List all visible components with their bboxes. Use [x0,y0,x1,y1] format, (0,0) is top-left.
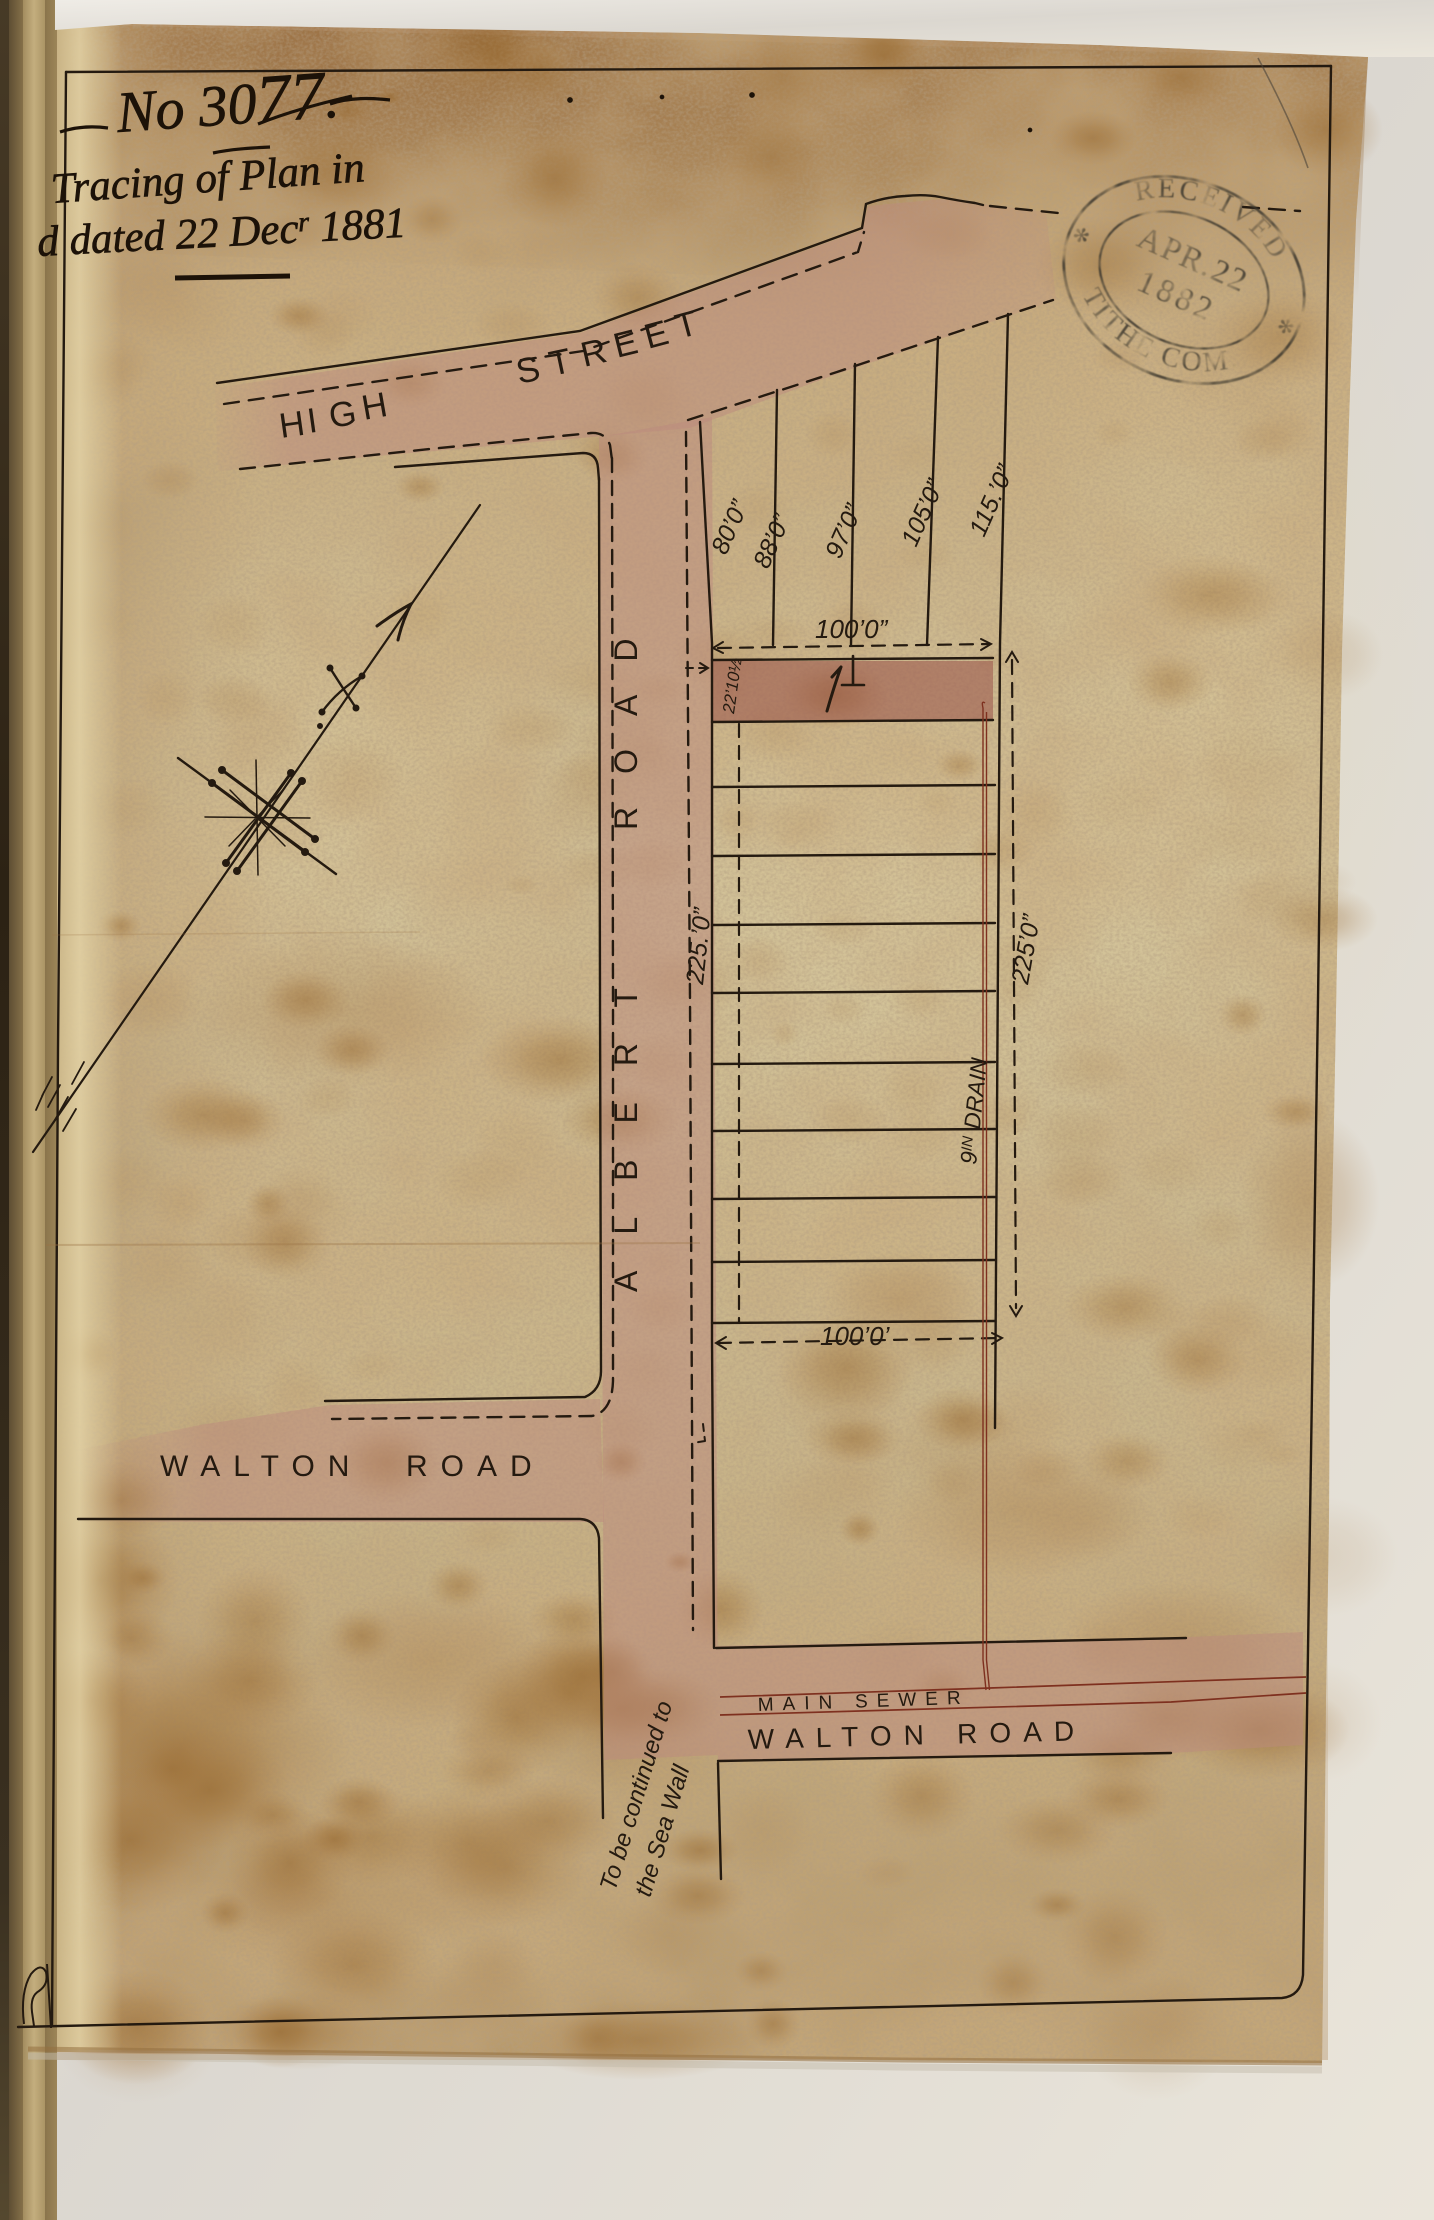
svg-text:WALTON ROAD: WALTON ROAD [160,1450,545,1483]
svg-text:ROAD: ROAD [608,606,644,830]
svg-text:100’0”: 100’0” [815,614,889,644]
svg-text:100’0’: 100’0’ [820,1321,891,1351]
svg-text:ALBERT: ALBERT [608,952,644,1292]
svg-text:H: H [277,404,307,446]
